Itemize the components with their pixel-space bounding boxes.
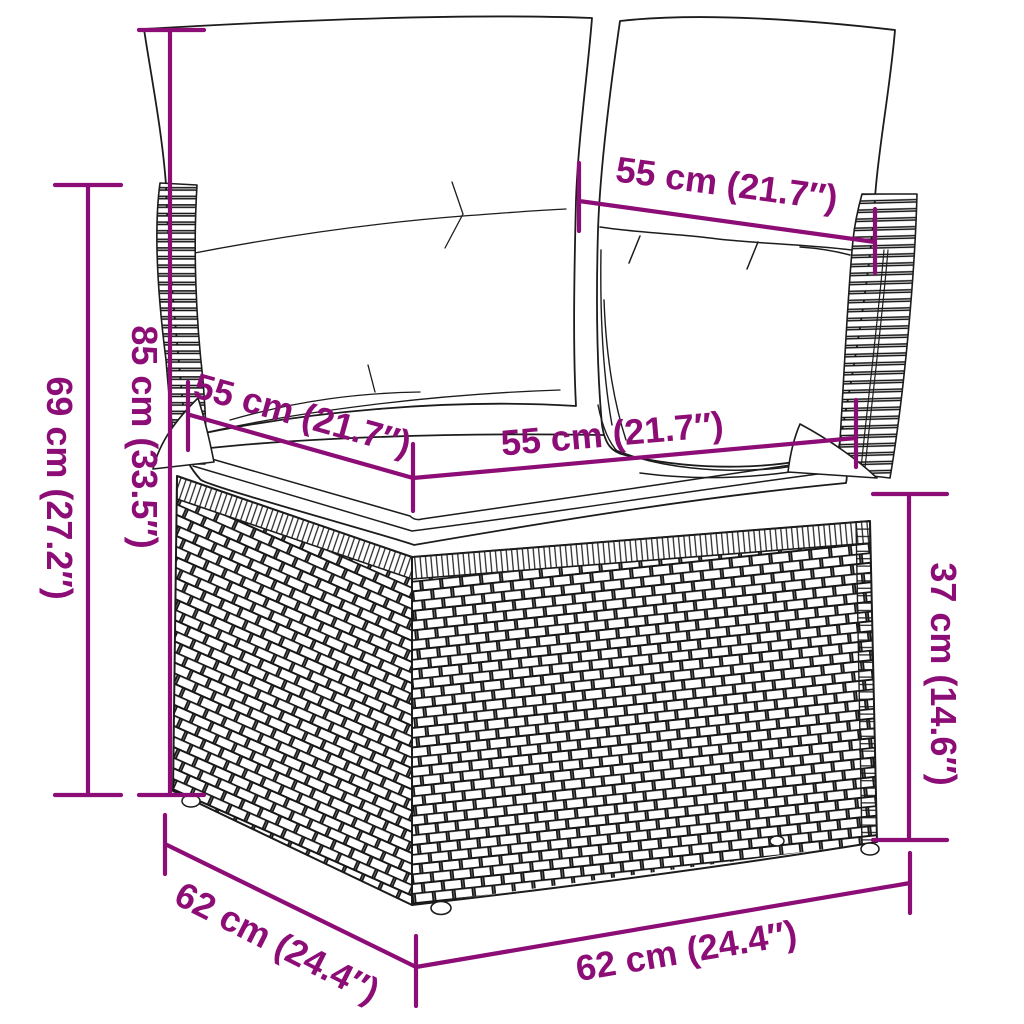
svg-text:37 cm (14.6″): 37 cm (14.6″) (923, 562, 964, 785)
svg-text:85 cm (33.5″): 85 cm (33.5″) (124, 325, 165, 548)
svg-text:69 cm (27.2″): 69 cm (27.2″) (39, 376, 80, 599)
